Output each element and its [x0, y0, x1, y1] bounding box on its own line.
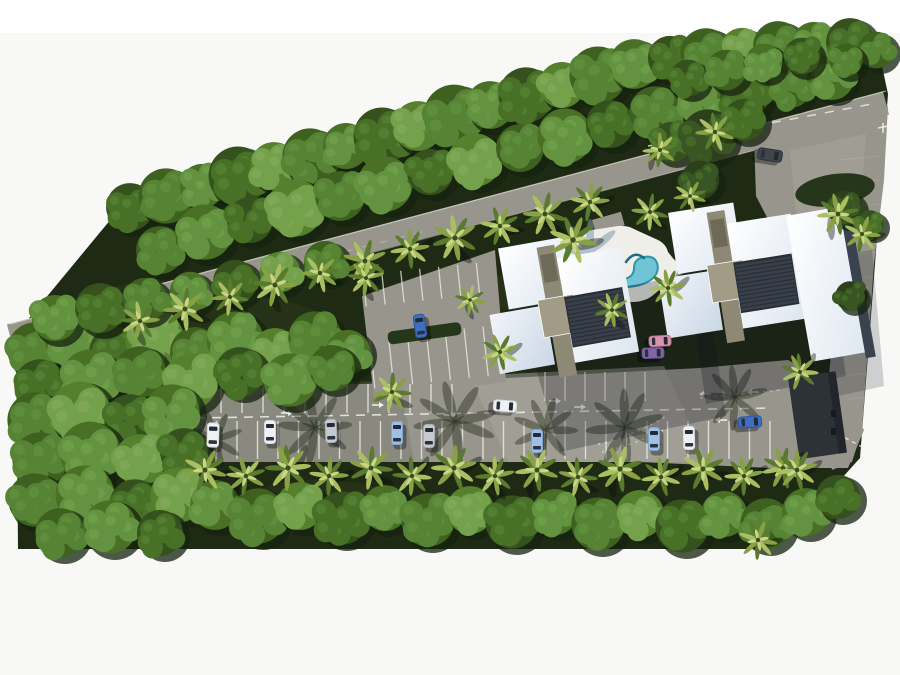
car-rear-window [741, 418, 745, 426]
tree-highlight [37, 316, 46, 325]
tree-highlight [394, 112, 404, 122]
tree-highlight [19, 383, 29, 393]
car-roof [534, 438, 541, 446]
car [649, 428, 664, 456]
car-windshield [650, 431, 658, 435]
tree-highlight [833, 32, 842, 41]
tree-highlight [502, 81, 513, 92]
tree-highlight [471, 104, 480, 113]
tree-highlight [143, 523, 152, 532]
tree-highlight [192, 506, 202, 516]
tree-highlight [506, 508, 516, 518]
car-windshield [266, 424, 274, 428]
tree-highlight [88, 513, 98, 523]
tree-highlight [488, 92, 497, 101]
tree-highlight [663, 51, 672, 60]
tree-highlight [33, 446, 44, 457]
tree-highlight [872, 214, 877, 219]
tree-highlight [17, 459, 28, 470]
car-windshield [685, 430, 693, 434]
tree-highlight [593, 124, 602, 133]
car-rear-window [650, 444, 658, 448]
car-roof [685, 434, 692, 442]
car-windshield [533, 433, 541, 437]
car-rear-window [208, 440, 217, 444]
tree-highlight [316, 369, 325, 378]
tree-highlight [789, 76, 798, 85]
tree-highlight [255, 152, 264, 161]
tree-highlight [89, 529, 99, 539]
rooftop-unit [831, 410, 836, 417]
car-roof [394, 430, 401, 438]
tree-highlight [231, 222, 240, 231]
tree-highlight [318, 522, 328, 532]
car-windshield [425, 428, 433, 432]
tree-highlight [81, 311, 91, 321]
car-windshield [509, 402, 514, 410]
tree-highlight [233, 519, 244, 530]
tree-highlight [791, 57, 798, 64]
tree-highlight [284, 366, 294, 376]
tree-highlight [789, 499, 798, 508]
tree-highlight [537, 516, 546, 525]
tree-highlight [117, 373, 127, 383]
tree-highlight [347, 495, 357, 505]
tree-highlight [142, 236, 151, 245]
tree-highlight [215, 163, 227, 175]
car-roof [745, 418, 753, 426]
tree-highlight [468, 152, 478, 162]
tree-highlight [430, 120, 442, 132]
solar-panel-array [565, 288, 631, 347]
tree-highlight [335, 185, 345, 195]
tree-highlight [592, 510, 602, 520]
tree-highlight [801, 505, 810, 514]
tree-highlight [403, 505, 413, 515]
tree-highlight [127, 287, 136, 296]
tree-highlight [487, 507, 497, 517]
tree-highlight [297, 495, 306, 504]
tree-highlight [306, 141, 317, 152]
car-rear-window [327, 436, 335, 440]
car-rear-window [645, 349, 649, 357]
tree-highlight [109, 340, 119, 350]
tree-highlight [605, 113, 614, 122]
tree-highlight [270, 157, 279, 166]
tree-highlight [40, 533, 50, 543]
tree-highlight [62, 440, 74, 452]
tree-highlight [160, 438, 169, 447]
tree-highlight [678, 512, 688, 522]
tree-highlight [874, 40, 881, 47]
tree-highlight [637, 118, 647, 128]
tree-highlight [661, 510, 671, 520]
tree-highlight [323, 251, 331, 259]
car-roof [209, 431, 217, 440]
tree-highlight [159, 526, 168, 535]
tree-highlight [720, 507, 729, 516]
tree-highlight [786, 48, 793, 55]
car-rear-window [533, 446, 541, 450]
tree-highlight [834, 293, 840, 299]
car-windshield [754, 417, 759, 425]
tree-highlight [12, 422, 23, 433]
car [207, 423, 224, 453]
tree-highlight [111, 211, 120, 220]
tree-highlight [579, 508, 589, 518]
tree-highlight [407, 160, 416, 169]
car-roof [656, 338, 664, 345]
tree-highlight [32, 304, 41, 313]
tree-highlight [520, 87, 531, 98]
car-windshield [393, 425, 401, 429]
tree-highlight [322, 198, 332, 208]
tree-highlight [278, 255, 286, 263]
tree-highlight [849, 35, 858, 44]
tree-highlight [140, 287, 149, 296]
tree-highlight [29, 487, 39, 497]
tree-highlight [81, 443, 93, 455]
tree-highlight [110, 196, 119, 205]
tree-highlight [836, 486, 845, 495]
tree-highlight [221, 372, 231, 382]
tree-highlight [184, 172, 193, 181]
tree-highlight [57, 525, 67, 535]
tree-highlight [450, 151, 460, 161]
tree-highlight [762, 511, 772, 521]
tree-highlight [62, 478, 74, 490]
tree-highlight [723, 61, 731, 69]
tree-highlight [378, 127, 389, 138]
tree-highlight [707, 71, 715, 79]
tree-highlight [746, 67, 753, 74]
tree-highlight [293, 337, 303, 347]
tree-highlight [432, 497, 442, 507]
tree-highlight [450, 103, 462, 115]
solar-panel-array [734, 254, 799, 312]
tree-highlight [462, 497, 471, 506]
tree-highlight [15, 500, 25, 510]
car [488, 399, 517, 416]
tree-highlight [578, 524, 588, 534]
car-roof [267, 429, 274, 437]
tree-highlight [233, 272, 242, 281]
tree-highlight [616, 64, 626, 74]
tree-highlight [760, 55, 767, 62]
tree-highlight [105, 516, 115, 526]
car [392, 422, 407, 450]
tree-highlight [279, 506, 288, 515]
tree-highlight [263, 259, 271, 267]
tree-highlight [146, 401, 157, 412]
tree-highlight [56, 411, 68, 423]
tree-highlight [835, 63, 841, 69]
tree-highlight [170, 404, 181, 415]
tree-highlight [255, 341, 264, 350]
rooftop-unit [831, 428, 836, 435]
tree-highlight [178, 444, 187, 453]
tree-highlight [145, 197, 156, 208]
tree-highlight [166, 368, 177, 379]
tree-highlight [557, 127, 568, 138]
car-roof [425, 432, 432, 440]
tree-highlight [231, 327, 242, 338]
tree-highlight [122, 199, 131, 208]
tree-highlight [814, 80, 823, 89]
tree-highlight [627, 52, 637, 62]
tree-highlight [426, 104, 438, 116]
tree-highlight [254, 505, 265, 516]
tree-highlight [126, 406, 136, 416]
tree-highlight [255, 201, 264, 210]
car [423, 424, 438, 452]
tree-highlight [146, 184, 157, 195]
tree-highlight [358, 123, 369, 134]
tree-highlight [664, 527, 674, 537]
car-roof [500, 402, 508, 410]
tree-highlight [317, 182, 327, 192]
tree-highlight [544, 121, 555, 132]
tree-highlight [271, 385, 281, 395]
tree-highlight [120, 460, 130, 470]
tree-highlight [670, 70, 677, 77]
tree-highlight [708, 60, 716, 68]
tree-highlight [703, 518, 712, 527]
tree-highlight [504, 146, 513, 155]
tree-highlight [136, 358, 146, 368]
tree-highlight [747, 56, 754, 63]
tree-highlight [148, 418, 159, 429]
tree-highlight [796, 45, 803, 52]
tree-highlight [106, 406, 116, 416]
tree-highlight [157, 478, 168, 489]
tree-highlight [271, 344, 280, 353]
tree-highlight [35, 371, 45, 381]
tree-highlight [680, 101, 689, 110]
tree-highlight [141, 535, 150, 544]
tree-highlight [364, 185, 375, 196]
tree-highlight [416, 171, 425, 180]
tree-highlight [13, 351, 24, 362]
tree-highlight [742, 108, 750, 116]
tree-highlight [310, 359, 319, 368]
tree-highlight [78, 401, 90, 413]
tree-highlight [502, 101, 513, 112]
tree-highlight [453, 509, 462, 518]
car-roof [416, 322, 424, 331]
tree-highlight [159, 240, 168, 249]
tree-highlight [359, 140, 370, 151]
car-rear-window [496, 401, 500, 409]
tree-highlight [227, 207, 236, 216]
tree-highlight [93, 298, 103, 308]
car-windshield [657, 349, 661, 357]
tree-highlight [494, 525, 504, 535]
tree-highlight [841, 54, 847, 60]
tree-highlight [407, 522, 417, 532]
tree-highlight [458, 165, 468, 175]
tree-highlight [574, 59, 585, 70]
tree-highlight [185, 190, 194, 199]
tree-highlight [422, 511, 432, 521]
car-rear-window [652, 337, 656, 345]
tree-highlight [231, 358, 241, 368]
tree-highlight [218, 178, 230, 190]
tree-highlight [326, 148, 335, 157]
tree-highlight [50, 308, 59, 317]
tree-highlight [285, 155, 296, 166]
tree-highlight [774, 38, 784, 48]
tree-highlight [535, 502, 544, 511]
tree-highlight [556, 72, 565, 81]
tree-highlight [588, 65, 599, 76]
tree-highlight [133, 447, 143, 457]
tree-highlight [249, 212, 258, 221]
tree-highlight [397, 124, 407, 134]
tree-highlight [166, 458, 175, 467]
tree-highlight [27, 337, 38, 348]
tree-highlight [707, 499, 716, 508]
site-plan-rendering [0, 0, 900, 675]
tree-highlight [653, 46, 662, 55]
car-roof [327, 427, 334, 435]
tree-highlight [695, 172, 703, 180]
tree-highlight [210, 492, 220, 502]
tree-highlight [736, 41, 745, 50]
car [265, 421, 280, 449]
tree-highlight [294, 324, 304, 334]
tree-highlight [635, 98, 645, 108]
tree-highlight [687, 73, 694, 80]
tree-highlight [196, 358, 207, 369]
car-rear-window [685, 443, 693, 447]
tree-highlight [655, 63, 664, 72]
tree-highlight [673, 38, 682, 47]
tree-highlight [380, 496, 389, 505]
tree-highlight [272, 207, 283, 218]
car-roof [649, 350, 657, 357]
tree-highlight [367, 509, 376, 518]
tree-highlight [264, 366, 274, 376]
tree-highlight [818, 495, 827, 504]
tree-highlight [842, 295, 848, 301]
car-roof [651, 436, 658, 444]
tree-highlight [855, 283, 861, 289]
tree-highlight [830, 50, 836, 56]
tree-highlight [650, 103, 660, 113]
tree-highlight [196, 490, 206, 500]
tree-highlight [623, 516, 632, 525]
tree-highlight [232, 162, 244, 174]
tree-highlight [182, 232, 193, 243]
tree-highlight [785, 516, 794, 525]
tree-highlight [673, 80, 680, 87]
tree-highlight [686, 136, 696, 146]
tree-highlight [316, 504, 326, 514]
tree-highlight [201, 218, 212, 229]
tree-highlight [160, 497, 171, 508]
tree-highlight [547, 84, 556, 93]
tree-highlight [310, 326, 320, 336]
tree-highlight [14, 406, 25, 417]
tree-highlight [547, 140, 558, 151]
tree-highlight [14, 444, 25, 455]
tree-highlight [183, 374, 194, 385]
car-windshield [664, 337, 668, 345]
tree-highlight [214, 341, 225, 352]
tree-highlight [64, 364, 75, 375]
tree-highlight [196, 181, 205, 190]
tree-highlight [337, 509, 347, 519]
car-windshield [327, 423, 335, 427]
tree-highlight [548, 504, 557, 513]
tree-highlight [160, 182, 171, 193]
tree-highlight [413, 112, 423, 122]
tree-highlight [140, 252, 149, 261]
tree-highlight [291, 193, 302, 204]
tree-highlight [252, 169, 261, 178]
tree-highlight [345, 136, 354, 145]
tree-highlight [329, 135, 338, 144]
site-plan-svg [0, 0, 900, 675]
tree-highlight [231, 502, 242, 513]
car-rear-window [393, 438, 401, 442]
car-rear-window [266, 437, 274, 441]
tree-highlight [31, 409, 42, 420]
tree-highlight [211, 325, 222, 336]
car-windshield [209, 426, 218, 430]
tree-highlight [577, 79, 588, 90]
car-rear-window [425, 441, 433, 445]
tree-highlight [86, 366, 97, 377]
car-roof [765, 151, 774, 160]
tree-highlight [76, 483, 88, 495]
tree-highlight [80, 297, 90, 307]
